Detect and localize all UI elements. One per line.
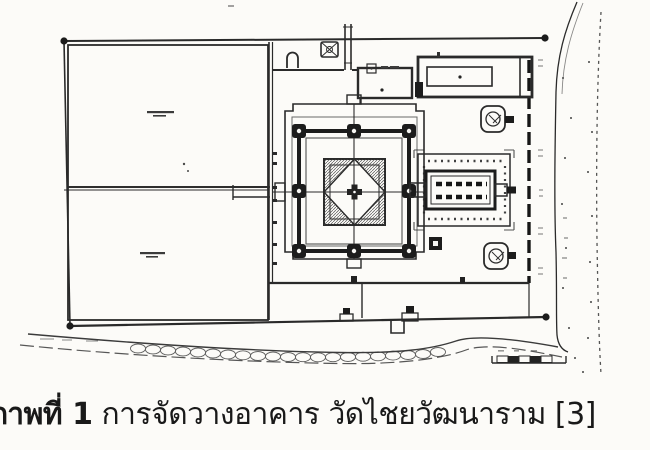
north-gate-and-causeway — [287, 24, 353, 70]
ubosot-hall — [426, 171, 495, 209]
site-plan-figure — [0, 0, 650, 390]
canal-scallops — [131, 344, 446, 362]
chedi-southeast — [484, 243, 516, 269]
site-plan-svg — [0, 0, 650, 390]
ubosot — [410, 150, 516, 250]
north-halls — [358, 52, 532, 104]
south-porch — [347, 259, 361, 268]
pier — [391, 320, 404, 333]
chedi-northwest — [321, 42, 338, 57]
figure-number: ภาพที่ 1 — [0, 397, 93, 432]
canal — [20, 334, 562, 364]
river-texture-dots — [561, 61, 593, 373]
column-rows — [436, 184, 487, 197]
central-prang-complex — [233, 95, 424, 268]
chedi-northeast — [481, 106, 514, 132]
wihan-hall — [418, 57, 532, 97]
survey-boundary — [60, 5, 549, 330]
temple-precinct-wall — [269, 42, 543, 320]
left-enclosure — [64, 45, 268, 320]
illegible-label — [140, 252, 165, 258]
illegible-label — [147, 111, 174, 117]
figure-caption-text: การจัดวางอาคาร วัดไชยวัฒนาราม [3] — [102, 397, 596, 432]
scale-bar — [492, 350, 566, 363]
figure-caption: ภาพที่ 1การจัดวางอาคาร วัดไชยวัฒนาราม [3… — [0, 391, 596, 438]
dimension-ticks — [538, 60, 543, 274]
specks — [183, 163, 189, 172]
west-causeway — [233, 185, 270, 200]
wall-buttresses — [273, 152, 277, 265]
river — [555, 2, 601, 374]
sala-hall — [358, 68, 412, 98]
